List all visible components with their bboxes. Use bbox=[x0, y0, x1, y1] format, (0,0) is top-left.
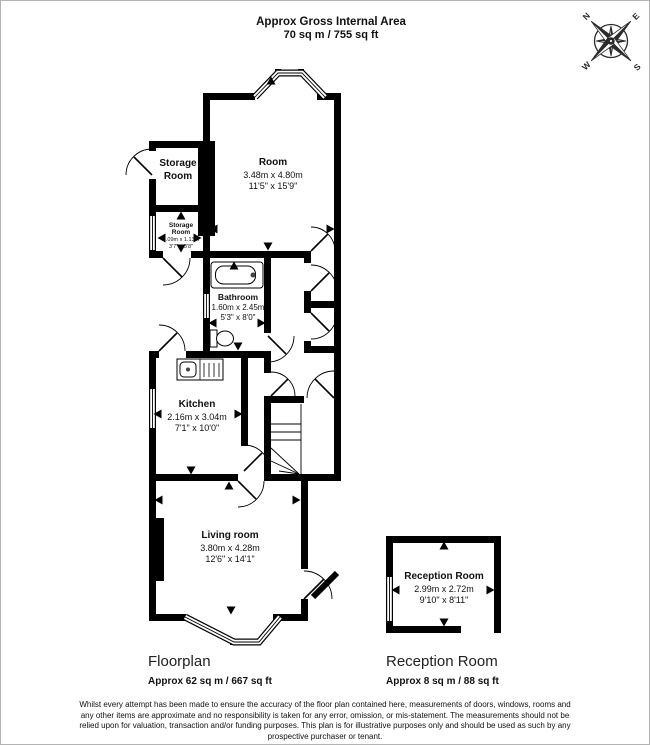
room-label-bathroom: Bathroom 1.60m x 2.45m 5'3" x 8'0" bbox=[212, 292, 265, 323]
bathtub-icon bbox=[211, 262, 263, 288]
compass-icon: N E S W bbox=[555, 1, 649, 98]
floorplan-caption-area: Approx 62 sq m / 667 sq ft bbox=[148, 676, 272, 687]
disclaimer-text: Whilst every attempt has been made to en… bbox=[75, 700, 575, 742]
room-label-main: Room 3.48m x 4.80m 11'5" x 15'9" bbox=[243, 157, 303, 192]
room-label-storage: Storage Room bbox=[159, 158, 196, 183]
floorplan-page: N E S W Approx Gross Internal Area 70 sq… bbox=[0, 0, 650, 745]
room-label-reception: Reception Room 2.99m x 2.72m 9'10" x 8'1… bbox=[404, 571, 483, 606]
toilet-icon bbox=[210, 330, 234, 347]
page-title: Approx Gross Internal Area 70 sq m / 755… bbox=[256, 15, 406, 43]
stairs bbox=[271, 404, 301, 474]
floorplan-caption: Floorplan Approx 62 sq m / 667 sq ft bbox=[148, 653, 272, 687]
gross-area-title: Approx Gross Internal Area bbox=[256, 15, 406, 29]
floorplan-canvas: N E S W bbox=[1, 1, 649, 744]
compass-east-label: E bbox=[630, 10, 641, 21]
kitchen-sink-icon bbox=[177, 359, 223, 380]
room-label-kitchen: Kitchen 2.16m x 3.04m 7'1" x 10'0" bbox=[167, 399, 227, 434]
reception-caption-area: Approx 8 sq m / 88 sq ft bbox=[386, 676, 499, 687]
room-label-living: Living room 3.80m x 4.28m 12'6" x 14'1" bbox=[200, 530, 260, 565]
compass-north-label: N bbox=[581, 11, 592, 22]
compass-south-label: S bbox=[632, 61, 643, 72]
reception-caption-title: Reception Room bbox=[386, 653, 499, 670]
floorplan-caption-title: Floorplan bbox=[148, 653, 272, 670]
room-label-storage-small: Storage Room 1.09m x 1.13m 3'7" x 3'8" bbox=[163, 222, 199, 250]
gross-area-value: 70 sq m / 755 sq ft bbox=[256, 29, 406, 43]
reception-caption: Reception Room Approx 8 sq m / 88 sq ft bbox=[386, 653, 499, 687]
